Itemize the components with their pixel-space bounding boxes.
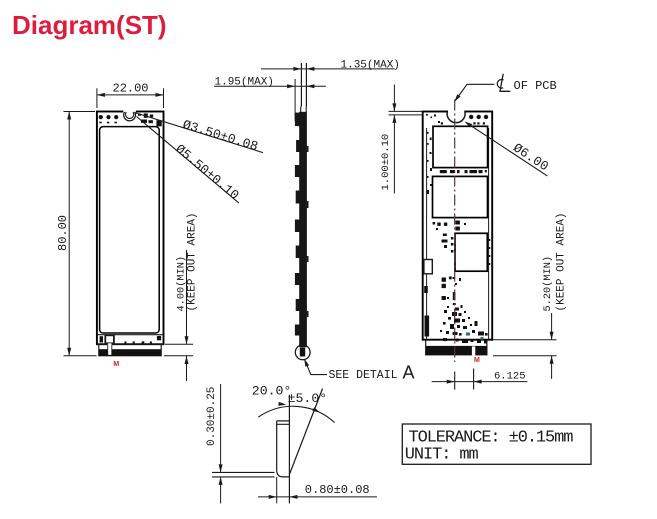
svg-text:±5.0°: ±5.0° xyxy=(288,391,328,406)
svg-text:(KEEP OUT AREA): (KEEP OUT AREA) xyxy=(187,212,199,311)
svg-text:Diagram(ST): Diagram(ST) xyxy=(12,10,167,40)
svg-text:1.95(MAX): 1.95(MAX) xyxy=(215,77,274,89)
svg-text:1.00±0.10: 1.00±0.10 xyxy=(380,134,392,191)
svg-text:1.35(MAX): 1.35(MAX) xyxy=(341,59,400,71)
svg-text:Ø3.50±0.08: Ø3.50±0.08 xyxy=(181,117,260,154)
svg-text:6.125: 6.125 xyxy=(494,370,526,382)
svg-text:5.20(MIN): 5.20(MIN) xyxy=(542,256,554,312)
svg-text:UNIT: mm: UNIT: mm xyxy=(405,445,479,464)
svg-text:M: M xyxy=(113,361,119,368)
svg-text:Ø6.00: Ø6.00 xyxy=(510,140,551,174)
svg-text:0.30±0.25: 0.30±0.25 xyxy=(206,387,218,446)
svg-text:SEE DETAIL: SEE DETAIL xyxy=(329,369,398,382)
svg-text:OF PCB: OF PCB xyxy=(514,79,557,93)
svg-text:20.0°: 20.0° xyxy=(252,383,292,398)
svg-text:0.80±0.08: 0.80±0.08 xyxy=(305,483,370,497)
svg-text:A: A xyxy=(403,362,415,382)
svg-text:4.00(MIN): 4.00(MIN) xyxy=(175,256,187,312)
svg-text:80.00: 80.00 xyxy=(56,215,70,251)
svg-text:22.00: 22.00 xyxy=(113,81,149,95)
svg-text:Ø5.50±0.10: Ø5.50±0.10 xyxy=(172,141,241,203)
svg-text:M: M xyxy=(474,357,480,364)
svg-text:(KEEP OUT AREA): (KEEP OUT AREA) xyxy=(555,212,567,311)
